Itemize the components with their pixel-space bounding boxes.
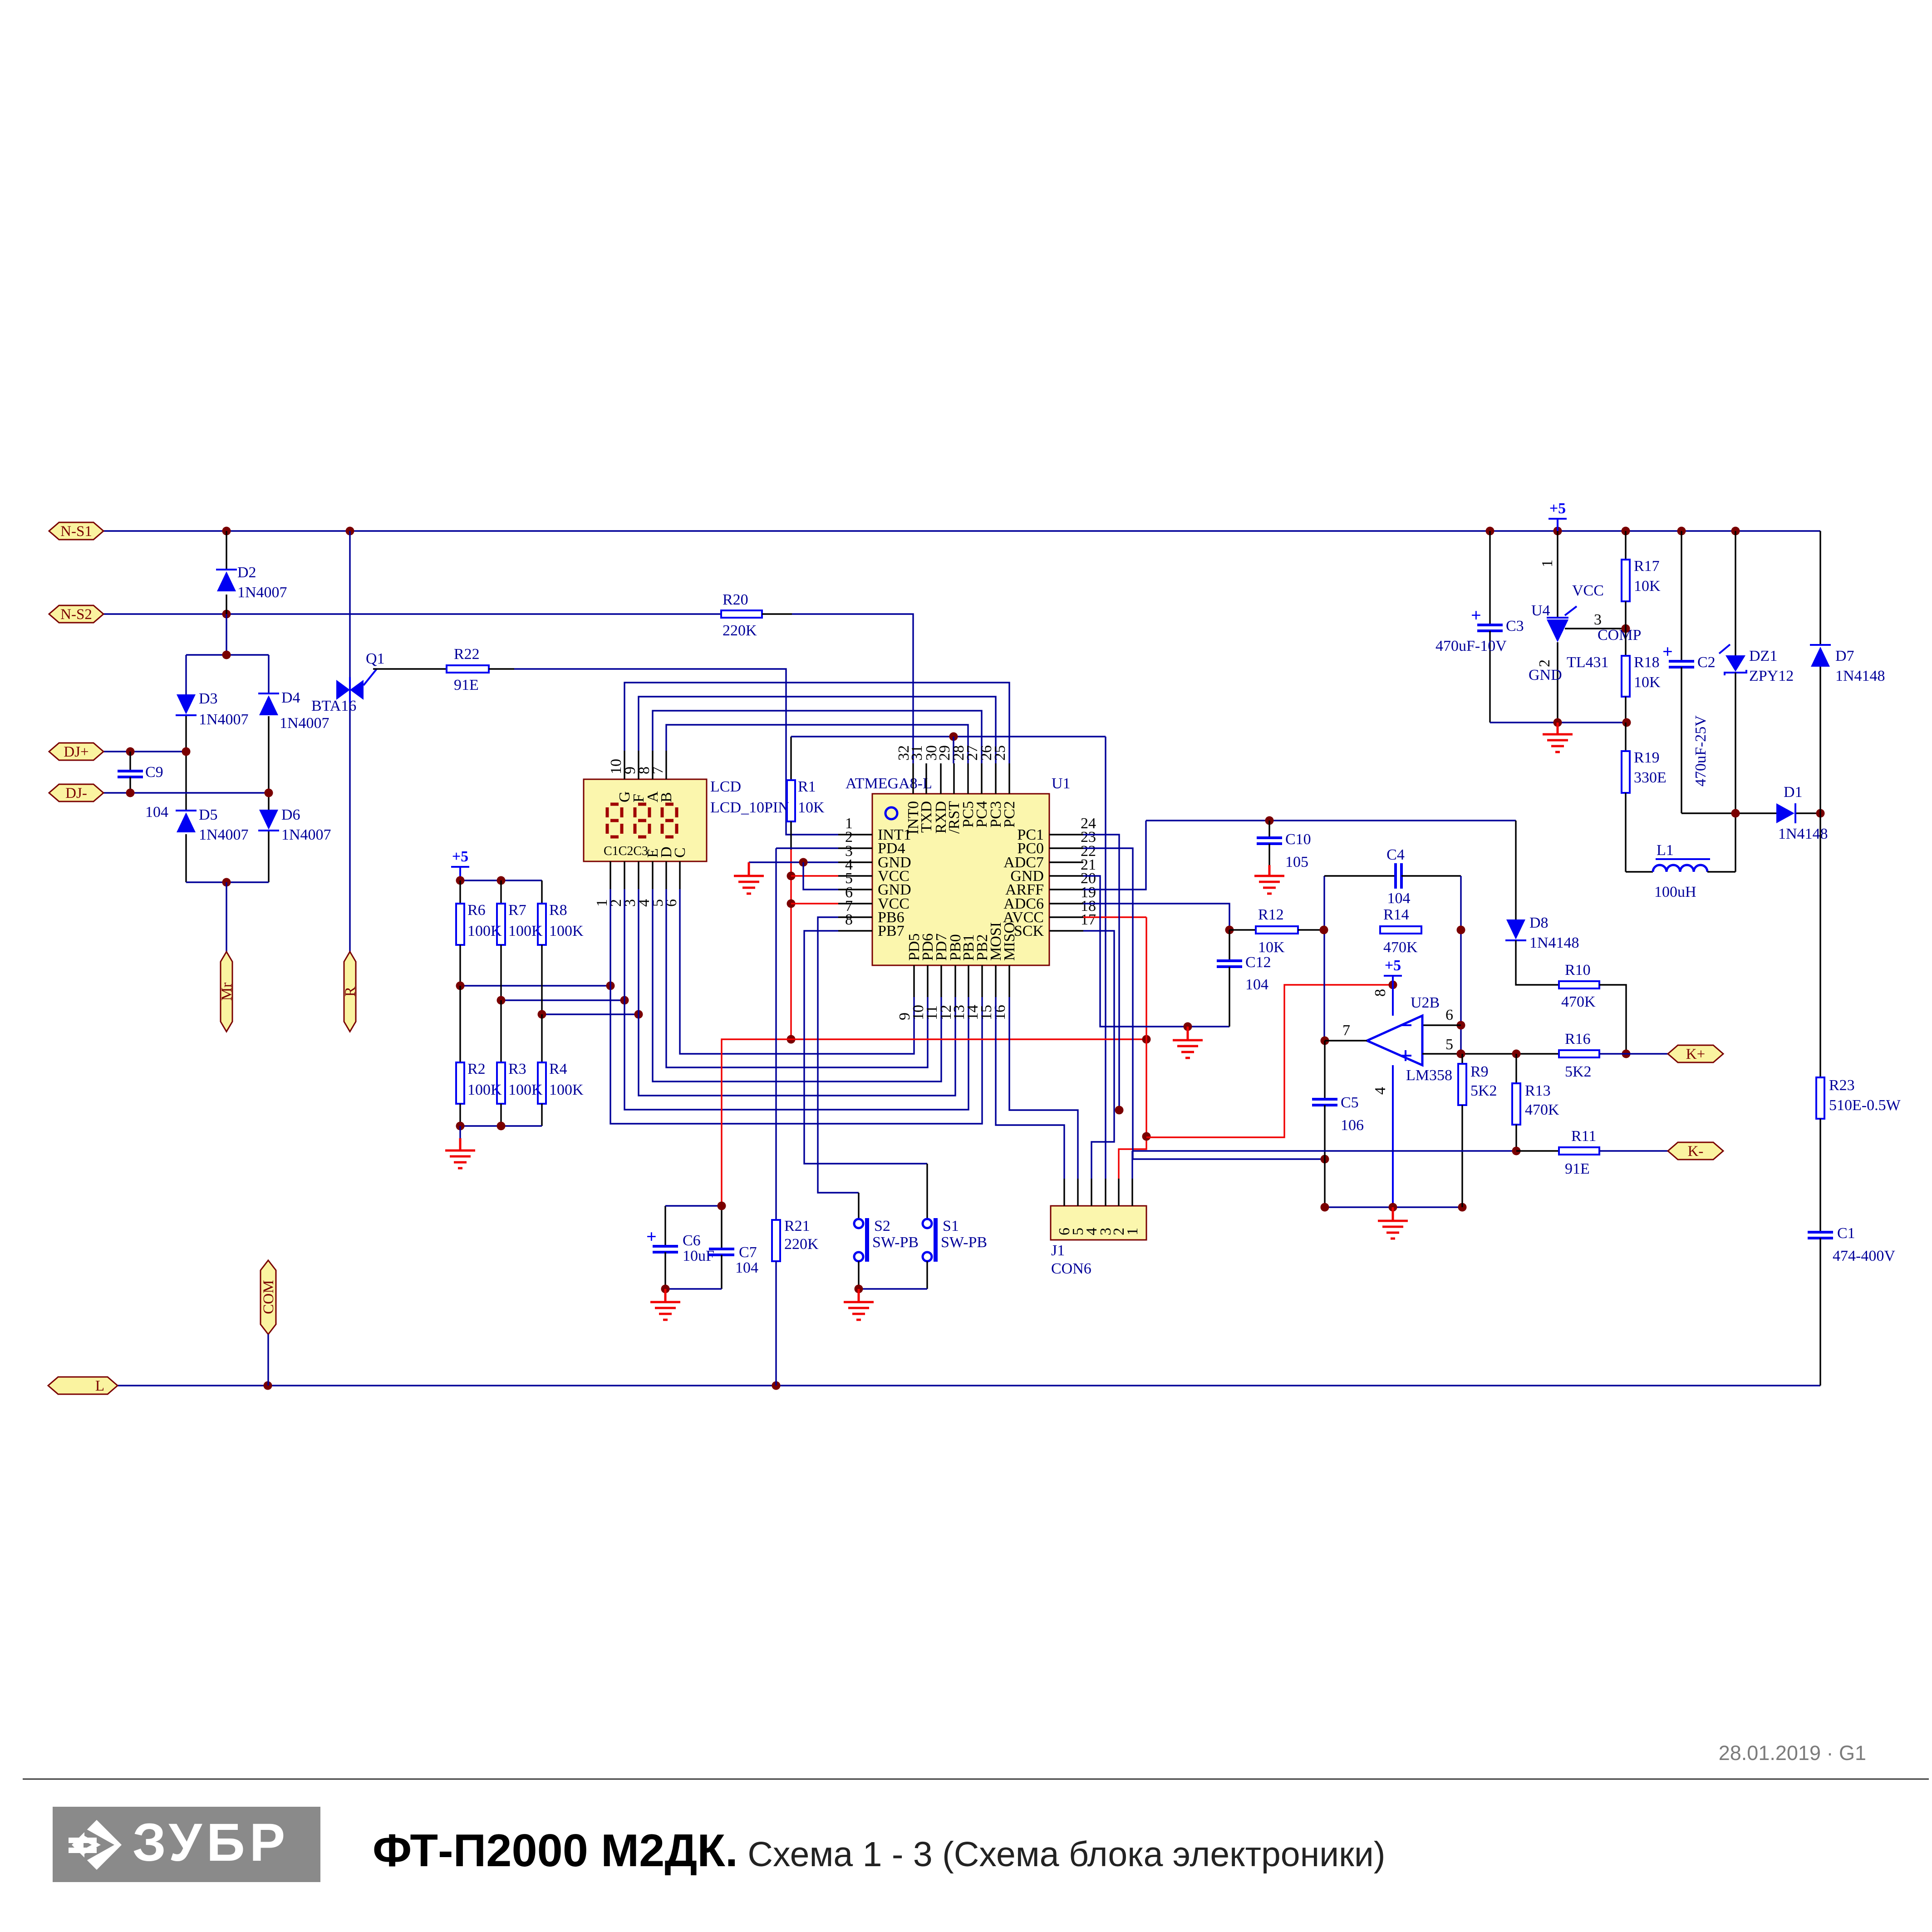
svg-text:91E: 91E (1565, 1160, 1590, 1177)
svg-text:SW-PB: SW-PB (872, 1234, 919, 1251)
svg-text:J1: J1 (1051, 1242, 1065, 1259)
svg-text:N-S2: N-S2 (60, 606, 92, 623)
svg-text:470K: 470K (1525, 1101, 1559, 1118)
svg-text:D1: D1 (1784, 784, 1803, 801)
svg-text:R21: R21 (784, 1218, 810, 1234)
svg-text:10K: 10K (798, 799, 825, 816)
svg-text:R22: R22 (454, 646, 480, 663)
svg-text:R: R (342, 987, 359, 997)
svg-text:GND: GND (1529, 667, 1562, 683)
svg-text:C10: C10 (1285, 831, 1311, 848)
svg-text:R16: R16 (1565, 1031, 1591, 1047)
svg-text:D6: D6 (281, 806, 300, 823)
svg-text:Q1: Q1 (366, 650, 385, 667)
svg-text:R14: R14 (1383, 906, 1409, 923)
svg-text:L: L (95, 1378, 104, 1394)
svg-text:104: 104 (1387, 890, 1411, 907)
svg-text:R4: R4 (549, 1061, 567, 1077)
svg-text:VCC: VCC (1572, 582, 1604, 599)
svg-text:C1: C1 (1837, 1225, 1855, 1242)
svg-text:R13: R13 (1525, 1082, 1551, 1099)
svg-text:BTA16: BTA16 (311, 698, 356, 714)
svg-text:100uH: 100uH (1654, 884, 1696, 900)
svg-text:LM358: LM358 (1406, 1067, 1452, 1084)
svg-text:106: 106 (1341, 1117, 1364, 1134)
svg-text:5K2: 5K2 (1470, 1082, 1497, 1099)
svg-text:K+: K+ (1686, 1046, 1705, 1062)
svg-text:470K: 470K (1383, 939, 1418, 956)
svg-text:220K: 220K (784, 1236, 819, 1253)
svg-text:PB7: PB7 (878, 923, 905, 939)
svg-text:+5: +5 (1549, 500, 1566, 517)
svg-text:CON6: CON6 (1051, 1260, 1091, 1277)
svg-text:1N4007: 1N4007 (199, 711, 249, 728)
svg-text:R1: R1 (798, 778, 816, 795)
svg-text:R11: R11 (1571, 1128, 1596, 1145)
svg-text:25: 25 (992, 745, 1008, 761)
svg-text:3: 3 (1594, 611, 1602, 628)
svg-text:R3: R3 (508, 1061, 526, 1077)
svg-text:C9: C9 (145, 764, 163, 781)
svg-text:510E-0.5W: 510E-0.5W (1829, 1097, 1901, 1114)
svg-text:COM: COM (261, 1280, 277, 1314)
svg-text:1: 1 (1539, 560, 1556, 567)
svg-text:DJ+: DJ+ (64, 744, 88, 760)
svg-text:PC2: PC2 (1001, 801, 1018, 828)
svg-text:D3: D3 (199, 690, 218, 707)
svg-text:R20: R20 (723, 591, 748, 608)
svg-text:+: + (1471, 605, 1481, 625)
svg-text:SCK: SCK (1014, 923, 1044, 939)
svg-text:17: 17 (1081, 911, 1096, 928)
svg-text:220K: 220K (723, 622, 757, 639)
svg-text:ЗУБР: ЗУБР (133, 1813, 290, 1873)
svg-text:10K: 10K (1634, 674, 1661, 691)
svg-text:+5: +5 (452, 848, 468, 865)
svg-text:C5: C5 (1341, 1094, 1359, 1111)
svg-text:100K: 100K (549, 1082, 584, 1098)
svg-text:4: 4 (1372, 1087, 1389, 1095)
svg-text:470uF-25V: 470uF-25V (1692, 715, 1709, 787)
svg-text:MISO: MISO (1001, 922, 1018, 961)
svg-text:R10: R10 (1565, 962, 1591, 978)
svg-text:470uF-10V: 470uF-10V (1435, 638, 1507, 654)
svg-text:105: 105 (1285, 854, 1308, 870)
svg-text:D5: D5 (199, 806, 218, 823)
svg-text:TL431: TL431 (1567, 654, 1609, 671)
svg-text:C4: C4 (1386, 846, 1405, 863)
svg-text:5: 5 (1445, 1036, 1453, 1053)
svg-text:104: 104 (145, 804, 168, 821)
svg-text:474-400V: 474-400V (1833, 1248, 1895, 1264)
svg-text:5K2: 5K2 (1565, 1063, 1592, 1080)
svg-text:R9: R9 (1470, 1063, 1489, 1080)
svg-text:1: 1 (1124, 1228, 1141, 1235)
svg-text:U4: U4 (1531, 602, 1550, 619)
svg-text:91E: 91E (454, 677, 479, 693)
svg-text:104: 104 (1245, 976, 1268, 993)
svg-text:+: + (1662, 641, 1673, 662)
svg-text:D8: D8 (1529, 914, 1549, 931)
svg-text:R18: R18 (1634, 654, 1660, 671)
svg-text:R19: R19 (1634, 749, 1660, 766)
svg-text:1N4007: 1N4007 (237, 584, 287, 601)
svg-text:1N4007: 1N4007 (281, 826, 331, 843)
svg-text:10K: 10K (1634, 578, 1661, 595)
svg-text:D7: D7 (1835, 648, 1854, 664)
svg-text:1N4007: 1N4007 (280, 715, 329, 732)
svg-text:28.01.2019 · G1: 28.01.2019 · G1 (1719, 1741, 1866, 1765)
svg-text:R7: R7 (508, 902, 526, 919)
svg-text:D4: D4 (281, 689, 300, 706)
svg-text:ATMEGA8-L: ATMEGA8-L (846, 775, 932, 792)
svg-text:C6: C6 (683, 1232, 701, 1249)
svg-text:470K: 470K (1561, 993, 1596, 1010)
svg-text:LCD_10PIN: LCD_10PIN (710, 799, 789, 816)
svg-text:+: + (646, 1226, 657, 1247)
svg-text:S2: S2 (874, 1218, 890, 1234)
svg-text:1N4148: 1N4148 (1835, 668, 1885, 684)
svg-text:1N4007: 1N4007 (199, 826, 249, 843)
svg-text:330E: 330E (1634, 769, 1667, 786)
svg-text:R12: R12 (1258, 906, 1284, 923)
svg-text:16: 16 (992, 1005, 1008, 1020)
svg-text:ZPY12: ZPY12 (1749, 668, 1794, 684)
svg-text:DZ1: DZ1 (1749, 648, 1777, 664)
svg-text:K-: K- (1688, 1143, 1704, 1160)
svg-text:R17: R17 (1634, 558, 1660, 575)
svg-text:C3: C3 (1506, 618, 1524, 634)
svg-text:C7: C7 (739, 1244, 757, 1261)
svg-text:C: C (672, 847, 688, 858)
svg-text:R6: R6 (467, 902, 486, 919)
svg-text:R8: R8 (549, 902, 567, 919)
svg-text:C1C2C3: C1C2C3 (604, 844, 648, 858)
svg-text:7: 7 (649, 767, 666, 774)
svg-text:LCD: LCD (710, 778, 741, 795)
svg-text:N-S1: N-S1 (60, 523, 92, 540)
svg-text:8: 8 (845, 911, 853, 928)
svg-text:SW-PB: SW-PB (941, 1234, 987, 1251)
svg-text:R2: R2 (467, 1061, 486, 1077)
svg-text:Mr: Mr (219, 983, 235, 1001)
svg-text:7: 7 (1342, 1022, 1350, 1039)
svg-text:U2B: U2B (1411, 994, 1440, 1011)
svg-text:6: 6 (1445, 1007, 1453, 1023)
svg-text:104: 104 (735, 1259, 758, 1276)
svg-text:R23: R23 (1829, 1077, 1855, 1094)
svg-text:U1: U1 (1052, 775, 1071, 792)
svg-text:DJ-: DJ- (65, 785, 87, 801)
svg-text:B: B (658, 792, 675, 802)
svg-text:10K: 10K (1258, 939, 1285, 956)
svg-text:C2: C2 (1697, 654, 1716, 671)
svg-text:100K: 100K (549, 923, 584, 939)
svg-text:2: 2 (1536, 659, 1553, 667)
svg-text:1N4148: 1N4148 (1529, 934, 1579, 951)
svg-text:S1: S1 (943, 1218, 959, 1234)
svg-text:D2: D2 (237, 564, 256, 581)
svg-text:L1: L1 (1657, 842, 1674, 859)
svg-text:C12: C12 (1245, 954, 1271, 971)
svg-text:+5: +5 (1385, 957, 1401, 974)
svg-text:8: 8 (1372, 989, 1389, 997)
